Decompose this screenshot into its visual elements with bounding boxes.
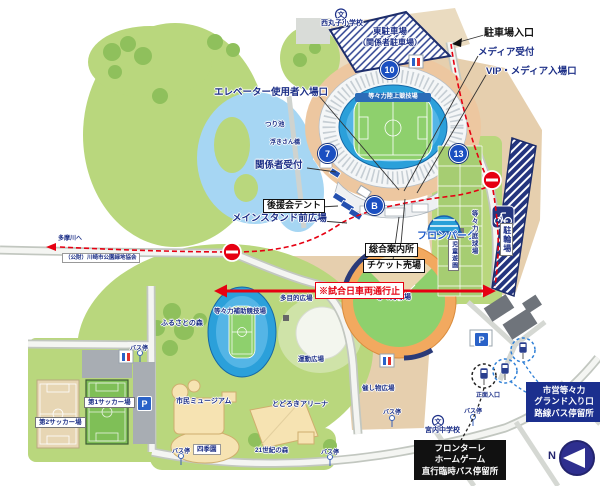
label-shiki-garden: 四季園 [193,444,221,455]
callout-staff-reception: 関係者受付 [255,161,303,171]
label-bus-stop: バス停 [172,446,190,455]
label-soccer1: 第1サッカー場 [84,397,135,408]
label-aux-track: 等々力補助競技場 [214,308,266,315]
city-bus-line3: 路線バス停留所 [528,408,600,419]
city-bus-line1: 市営等々力 [528,385,600,396]
frontale-bus-line2: ホームゲーム [416,454,504,465]
label-event-plaza: 催し物広場 [362,385,395,392]
parking-p-icon: P [137,396,152,411]
toilet-icon [380,354,394,367]
school-mark-text: 文 [433,417,443,427]
school-mark-text: 文 [336,10,346,20]
label-soccer2: 第2サッカー場 [35,417,86,428]
gate-b-badge: B [365,196,384,215]
label-athletics-stadium: 等々力陸上競技場 [355,93,431,102]
label-sports-plaza: 運動広場 [298,356,324,363]
label-forest-21: 21世紀の森 [255,447,288,454]
frontale-bus-box: フロンターレ ホームゲーム 直行臨時バス停留所 [414,440,506,480]
label-tennis-courts: 等々力庭球場 [470,210,477,255]
city-bus-line2: グランド入り口 [528,396,600,407]
frontale-bus-line1: フロンターレ [416,443,504,454]
label-bus-stop: バス停 [464,406,482,415]
label-bridge: 浮きさん橋 [270,140,300,147]
callout-vip-media-gate: VIP・メディア入場口 [486,67,577,77]
park-map: 駐車場入口 メディア受付 VIP・メディア入場口 エレベーター使用者入場口 関係… [0,0,600,486]
aux-track-shape [208,287,276,377]
match-day-closed-notice: ※試合日車両通行止 [315,282,404,299]
gate-13-badge: 13 [449,144,468,163]
label-multipurpose-plaza: 多目的広場 [280,295,313,302]
label-to-tama-river: 多摩川へ [58,236,82,243]
gate-10-badge: 10 [380,60,399,79]
label-park-association: （公財）川崎市公園緑地協会 [62,253,140,263]
callout-parking-entrance: 駐車場入口 [484,28,534,39]
label-junior-high-school: 宮内中学校 [425,427,460,435]
label-bicycle-parking: 駐輪場 [500,223,513,256]
frontale-bus-line3: 直行臨時バス停留所 [416,466,504,477]
callout-ticket-office: チケット売場 [363,259,425,273]
label-arena: とどろきアリーナ [272,401,328,409]
label-bus-stop: バス停 [130,343,148,352]
city-bus-box: 市営等々力 グランド入り口 路線バス停留所 [526,382,600,422]
callout-supporters-tent: 後援会テント [263,199,325,213]
label-main-entrance: 正面入口 [476,393,500,400]
compass-icon [560,441,594,475]
label-bus-stop: バス停 [321,447,339,456]
label-children-garden: 児童遊園 [448,239,459,271]
label-east-parking-1: 東駐車場 [345,27,435,36]
parking-p-icon: P [474,332,489,347]
callout-main-stand-plaza: メインスタンド前広場 [232,214,327,224]
callout-fron-park: フロンパーク [417,231,477,242]
compass-north-label: N [548,450,556,462]
gate-7-badge: 7 [318,144,337,163]
label-elementary-school: 西丸子小学校 [321,20,363,28]
label-east-parking-2: （関係者駐車場） [345,39,435,48]
label-bus-stop: バス停 [383,407,401,416]
callout-media-reception: メディア受付 [478,48,534,58]
callout-elevator-gate: エレベーター使用者入場口 [214,88,328,98]
toilet-icon [409,55,423,68]
label-museum: 市民ミュージアム [176,398,231,406]
label-fishing-pond: つり池 [265,121,285,128]
callout-info-center: 総合案内所 [365,243,418,257]
label-furusato-forest: ふるさとの森 [161,320,203,328]
